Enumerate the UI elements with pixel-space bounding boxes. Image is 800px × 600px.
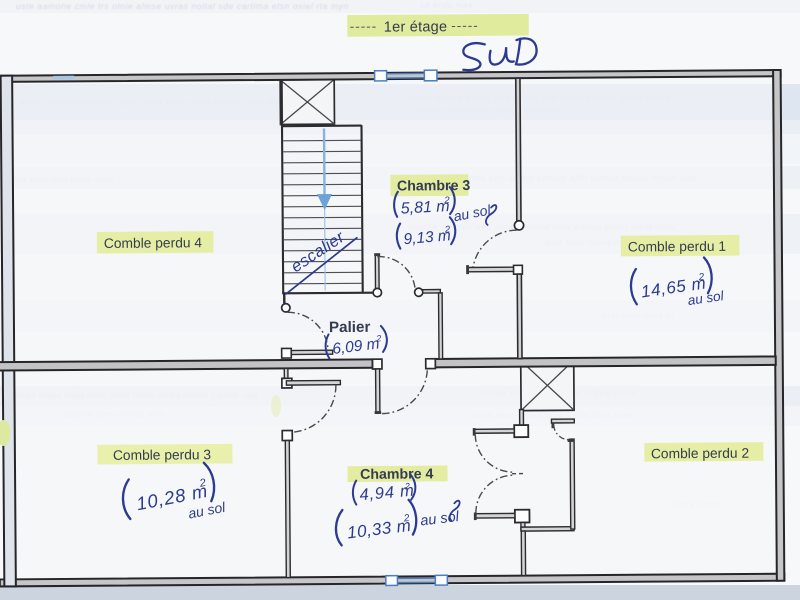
svg-text:Palier: Palier	[329, 319, 371, 336]
svg-text:uste aamone cmle trs olnie alm: uste aamone cmle trs olnie almse uvras n…	[16, 1, 349, 11]
svg-text:sd erulc mas: sd erulc mas	[420, 1, 473, 10]
svg-text:2: 2	[403, 481, 410, 491]
svg-text:Comble perdu 4: Comble perdu 4	[104, 235, 203, 251]
svg-text:Comble perdu 2: Comble perdu 2	[651, 446, 749, 462]
svg-text:-----: -----	[350, 19, 378, 34]
svg-text:Chambre 3: Chambre 3	[397, 178, 471, 195]
svg-text:5,81 m: 5,81 m	[400, 198, 450, 218]
svg-text:Chambre 4: Chambre 4	[360, 466, 434, 483]
svg-text:1er étage: 1er étage	[384, 19, 448, 35]
svg-text:Comble perdu 3: Comble perdu 3	[113, 447, 212, 463]
svg-text:Comble perdu 1: Comble perdu 1	[628, 239, 726, 255]
svg-text:-----: -----	[451, 18, 479, 33]
svg-text:2: 2	[375, 333, 382, 344]
